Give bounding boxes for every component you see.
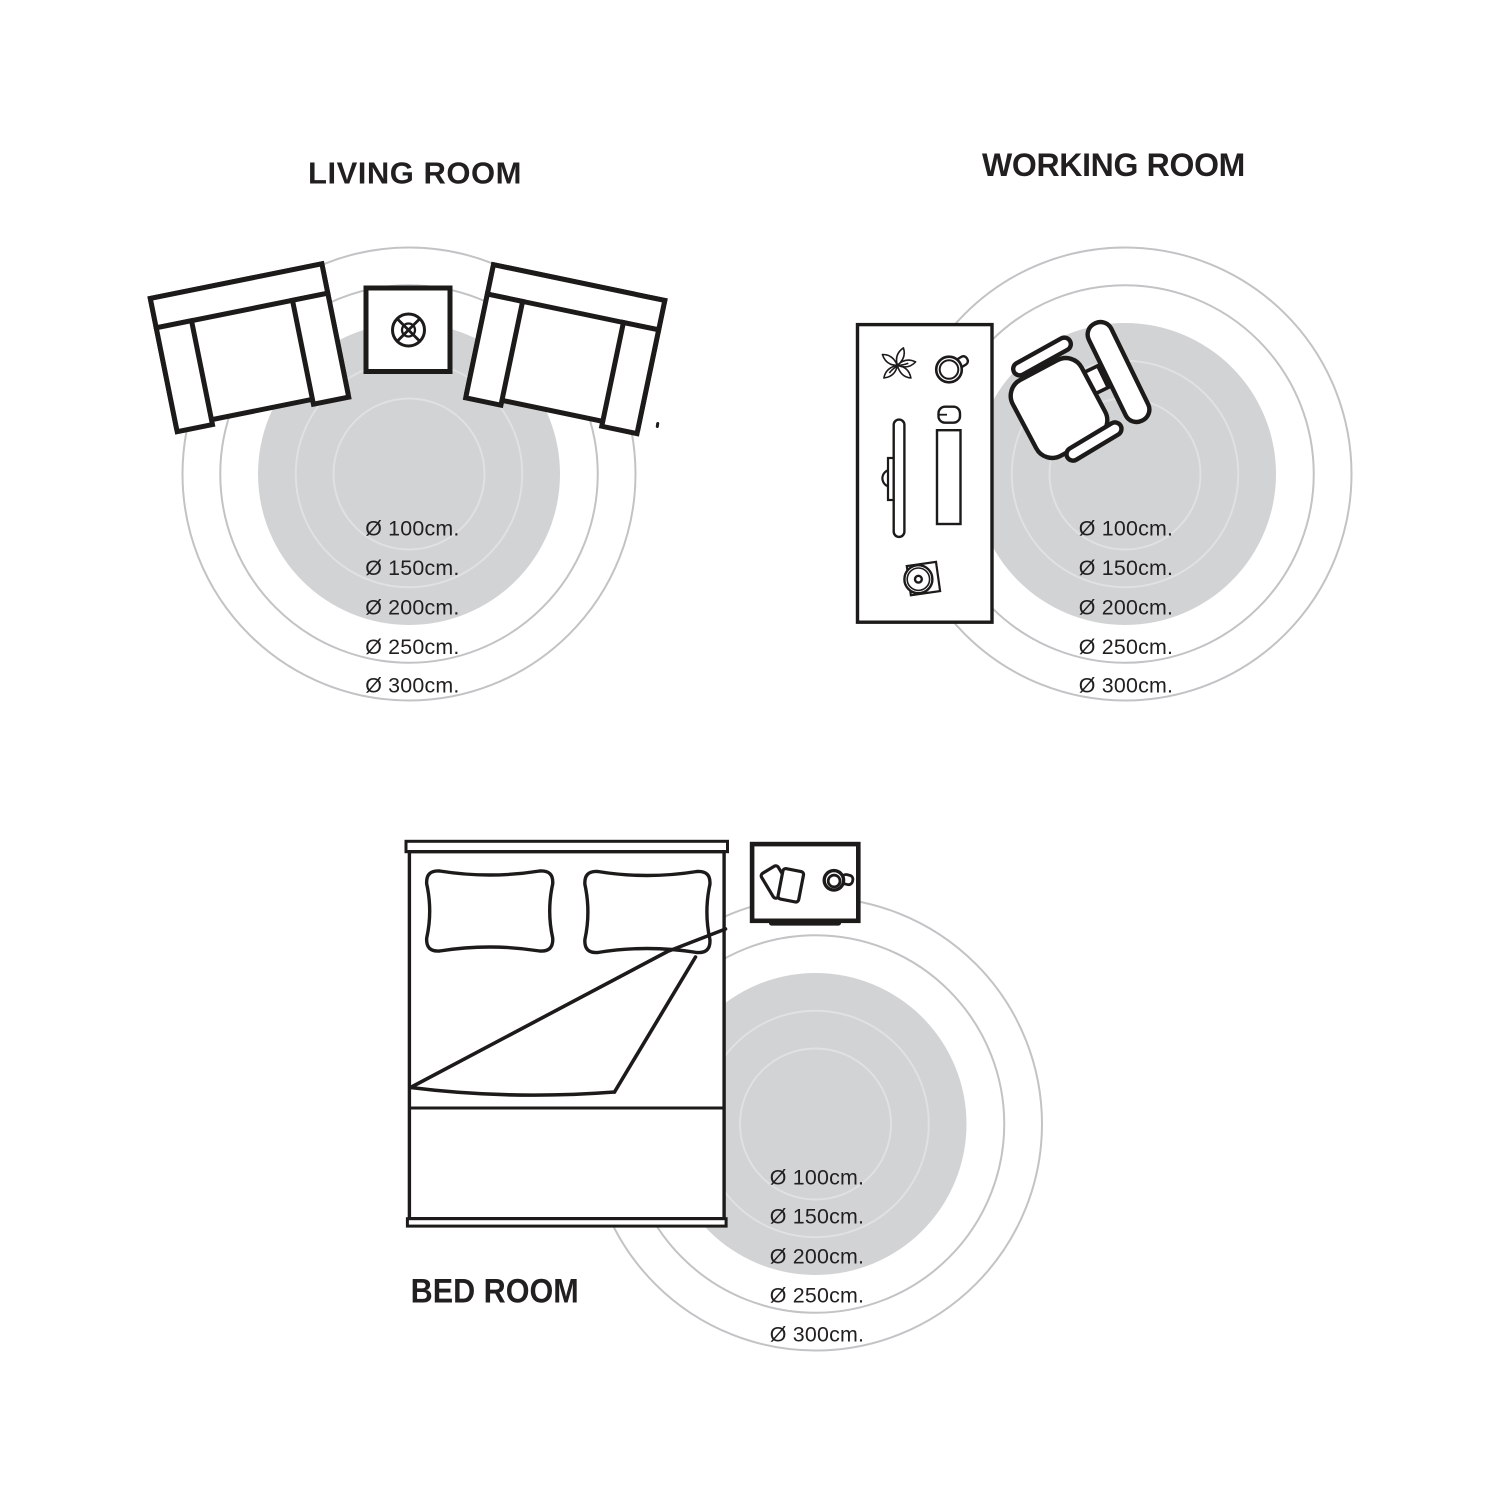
svg-text:Ø 200cm.: Ø 200cm. — [770, 1245, 864, 1269]
svg-text:WORKING ROOM: WORKING ROOM — [982, 147, 1245, 183]
svg-text:Ø 200cm.: Ø 200cm. — [365, 596, 459, 620]
svg-text:Ø 200cm.: Ø 200cm. — [1079, 596, 1173, 620]
svg-text:Ø 300cm.: Ø 300cm. — [365, 674, 459, 698]
svg-text:Ø 250cm.: Ø 250cm. — [770, 1284, 864, 1308]
svg-text:Ø 100cm.: Ø 100cm. — [770, 1166, 864, 1190]
svg-text:Ø 150cm.: Ø 150cm. — [770, 1205, 864, 1229]
svg-text:Ø 300cm.: Ø 300cm. — [770, 1323, 864, 1347]
svg-text:Ø 100cm.: Ø 100cm. — [1079, 517, 1173, 541]
svg-text:Ø 100cm.: Ø 100cm. — [365, 517, 459, 541]
svg-text:Ø 150cm.: Ø 150cm. — [365, 556, 459, 580]
svg-text:Ø 300cm.: Ø 300cm. — [1079, 674, 1173, 698]
svg-text:LIVING ROOM: LIVING ROOM — [308, 156, 522, 191]
svg-text:Ø 250cm.: Ø 250cm. — [1079, 635, 1173, 659]
svg-text:BED ROOM: BED ROOM — [411, 1271, 579, 1310]
svg-text:Ø 150cm.: Ø 150cm. — [1079, 556, 1173, 580]
svg-text:Ø 250cm.: Ø 250cm. — [365, 635, 459, 659]
